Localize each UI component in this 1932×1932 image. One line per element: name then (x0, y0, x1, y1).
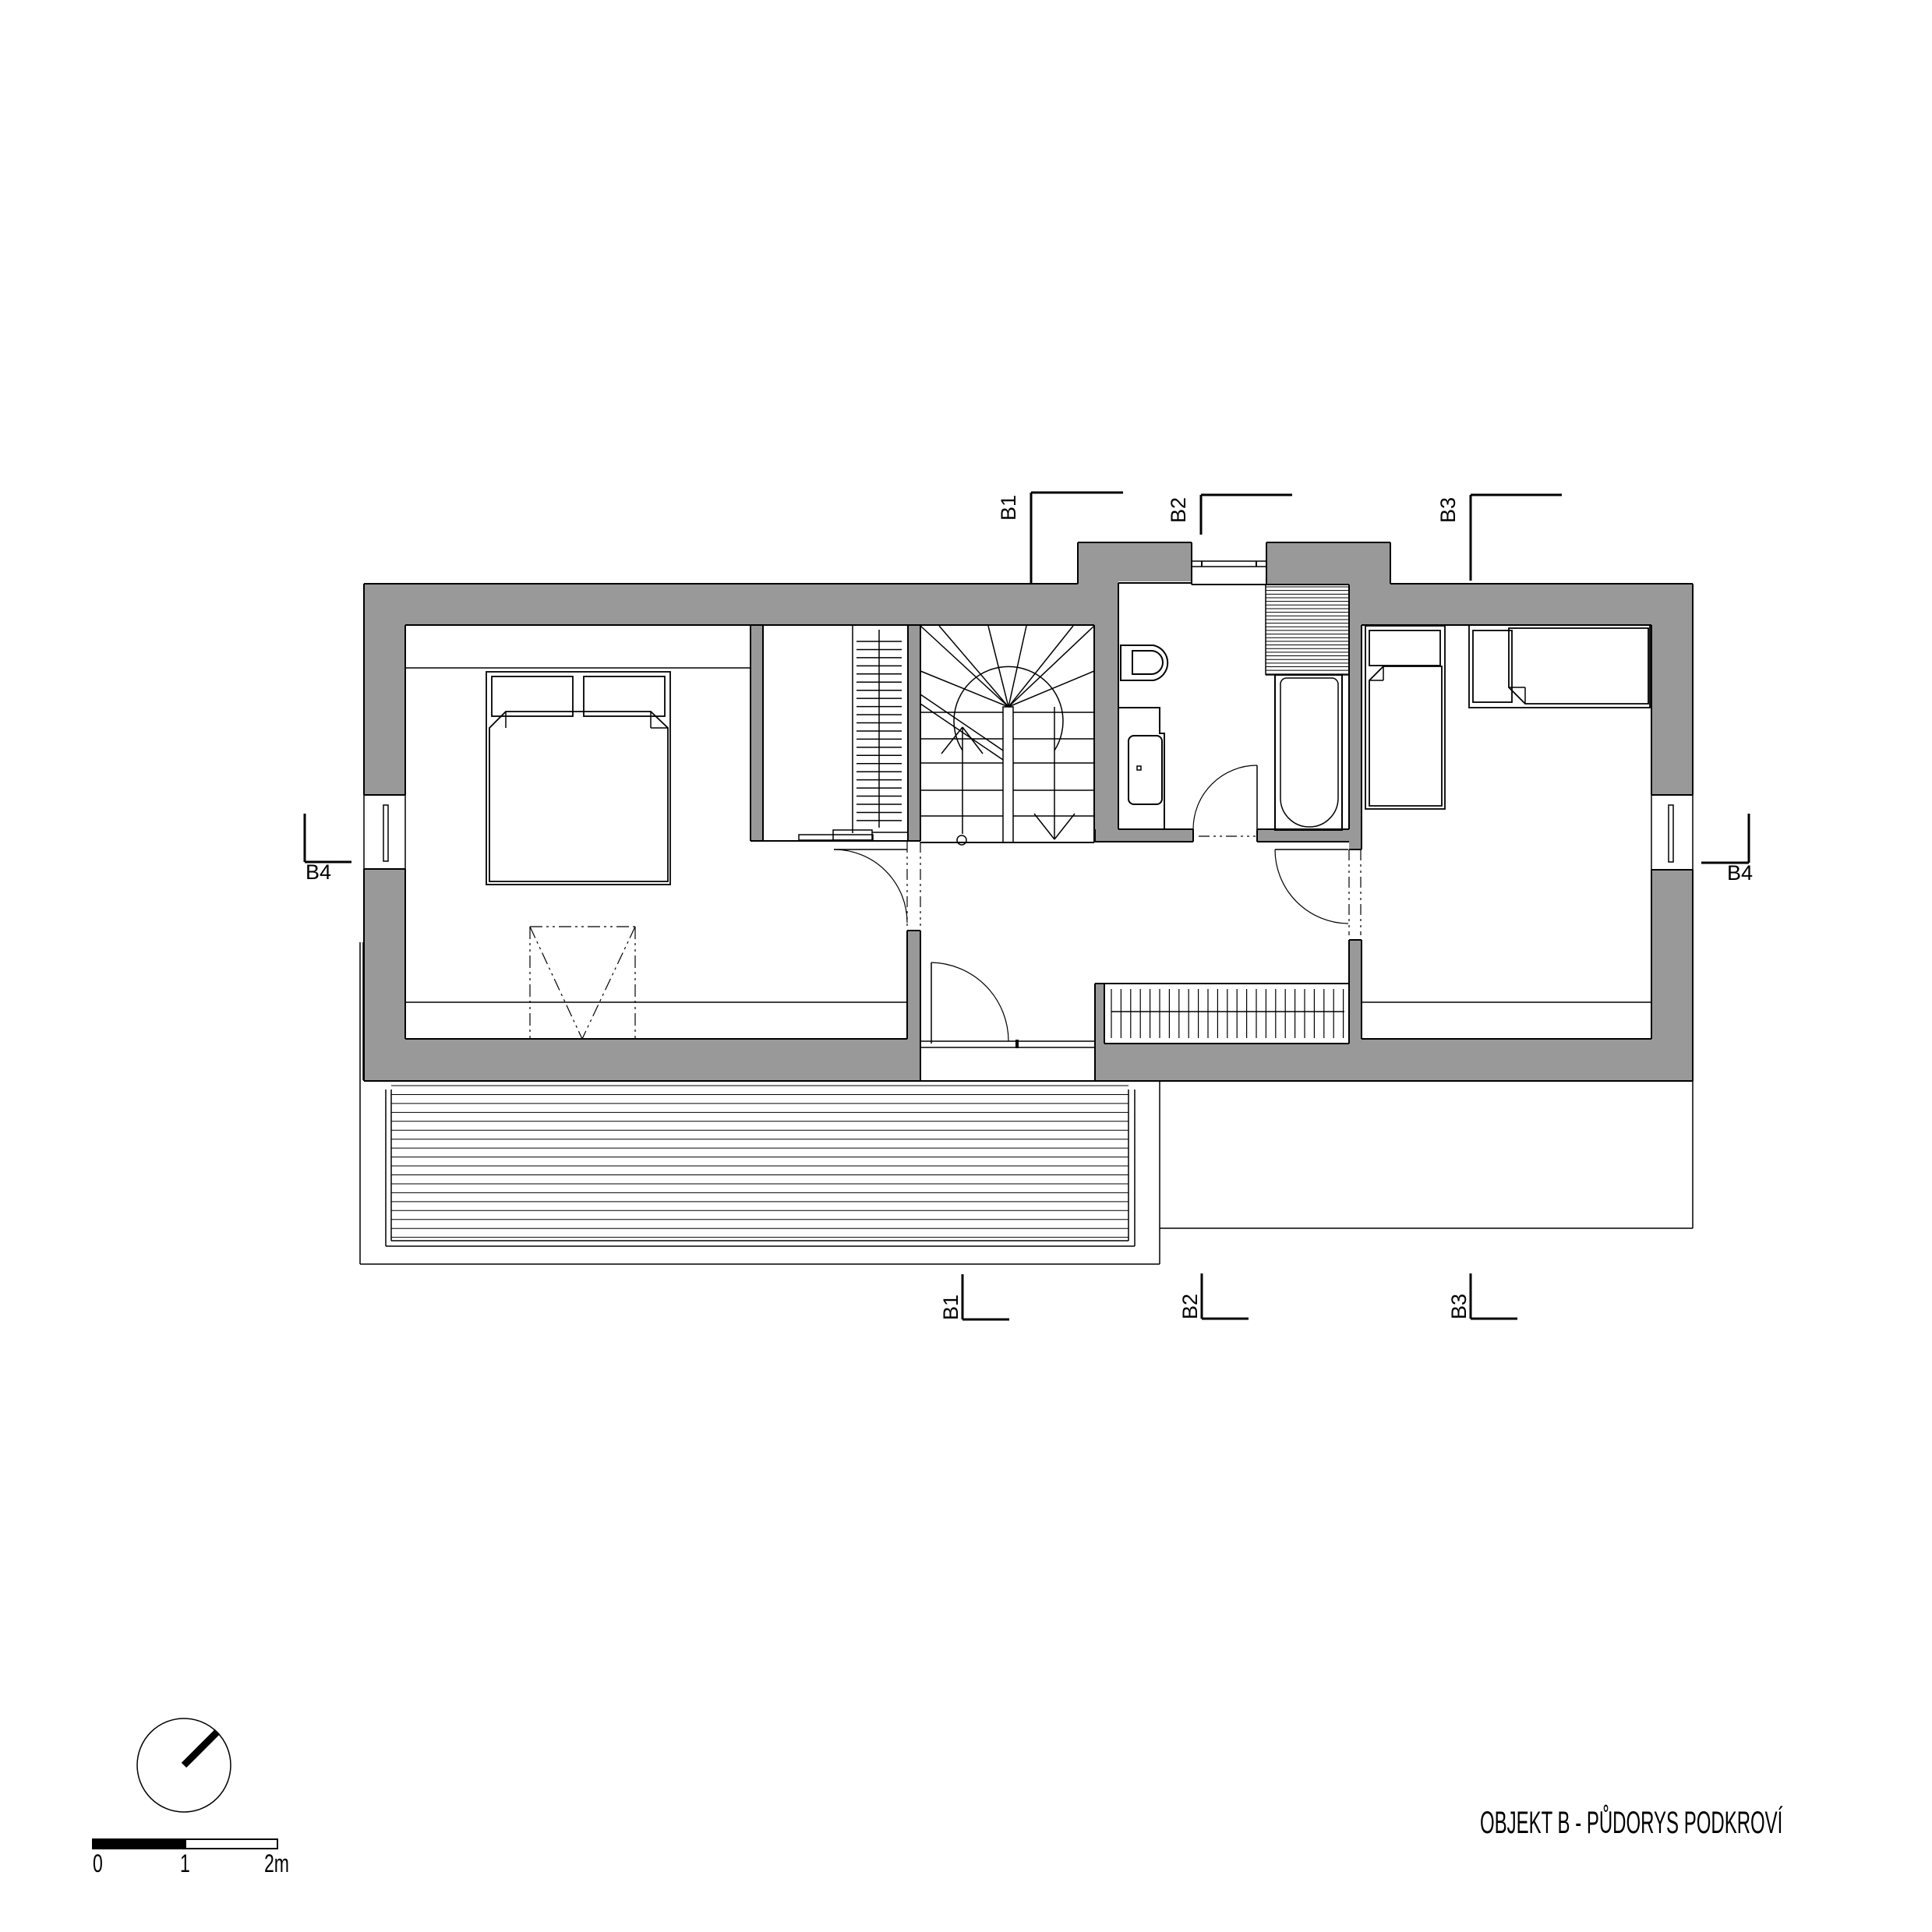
svg-text:OBJEKT B - PŮDORYS PODKROVÍ: OBJEKT B - PŮDORYS PODKROVÍ (1480, 1803, 1783, 1839)
svg-text:0: 0 (93, 1849, 103, 1877)
svg-text:B4: B4 (1727, 861, 1753, 885)
svg-text:B1: B1 (997, 495, 1020, 521)
svg-text:B2: B2 (1178, 1294, 1202, 1319)
svg-text:B2: B2 (1167, 497, 1190, 523)
svg-text:2m: 2m (264, 1849, 289, 1877)
svg-text:B3: B3 (1436, 497, 1460, 523)
svg-text:B4: B4 (306, 860, 331, 884)
svg-text:B3: B3 (1447, 1294, 1471, 1319)
svg-text:B1: B1 (939, 1294, 962, 1320)
svg-text:1: 1 (180, 1849, 190, 1877)
